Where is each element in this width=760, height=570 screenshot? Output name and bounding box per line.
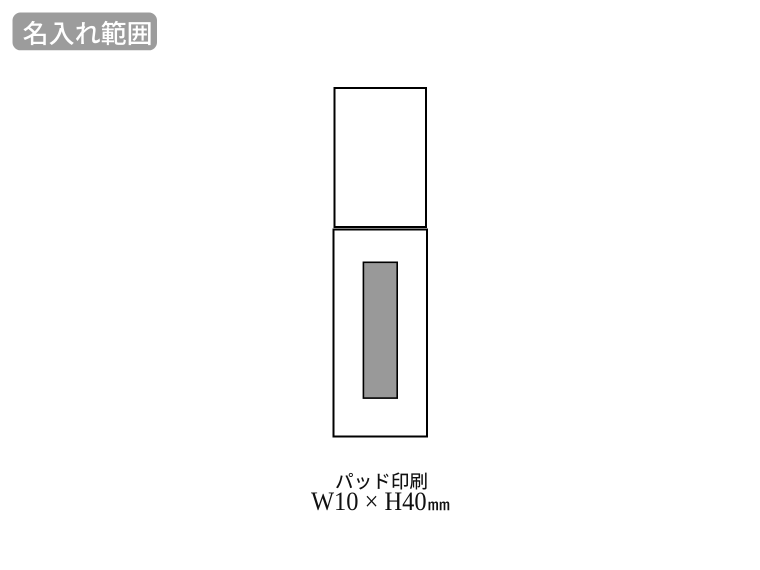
svg-text:W10 × H40: W10 × H40 (311, 488, 427, 516)
